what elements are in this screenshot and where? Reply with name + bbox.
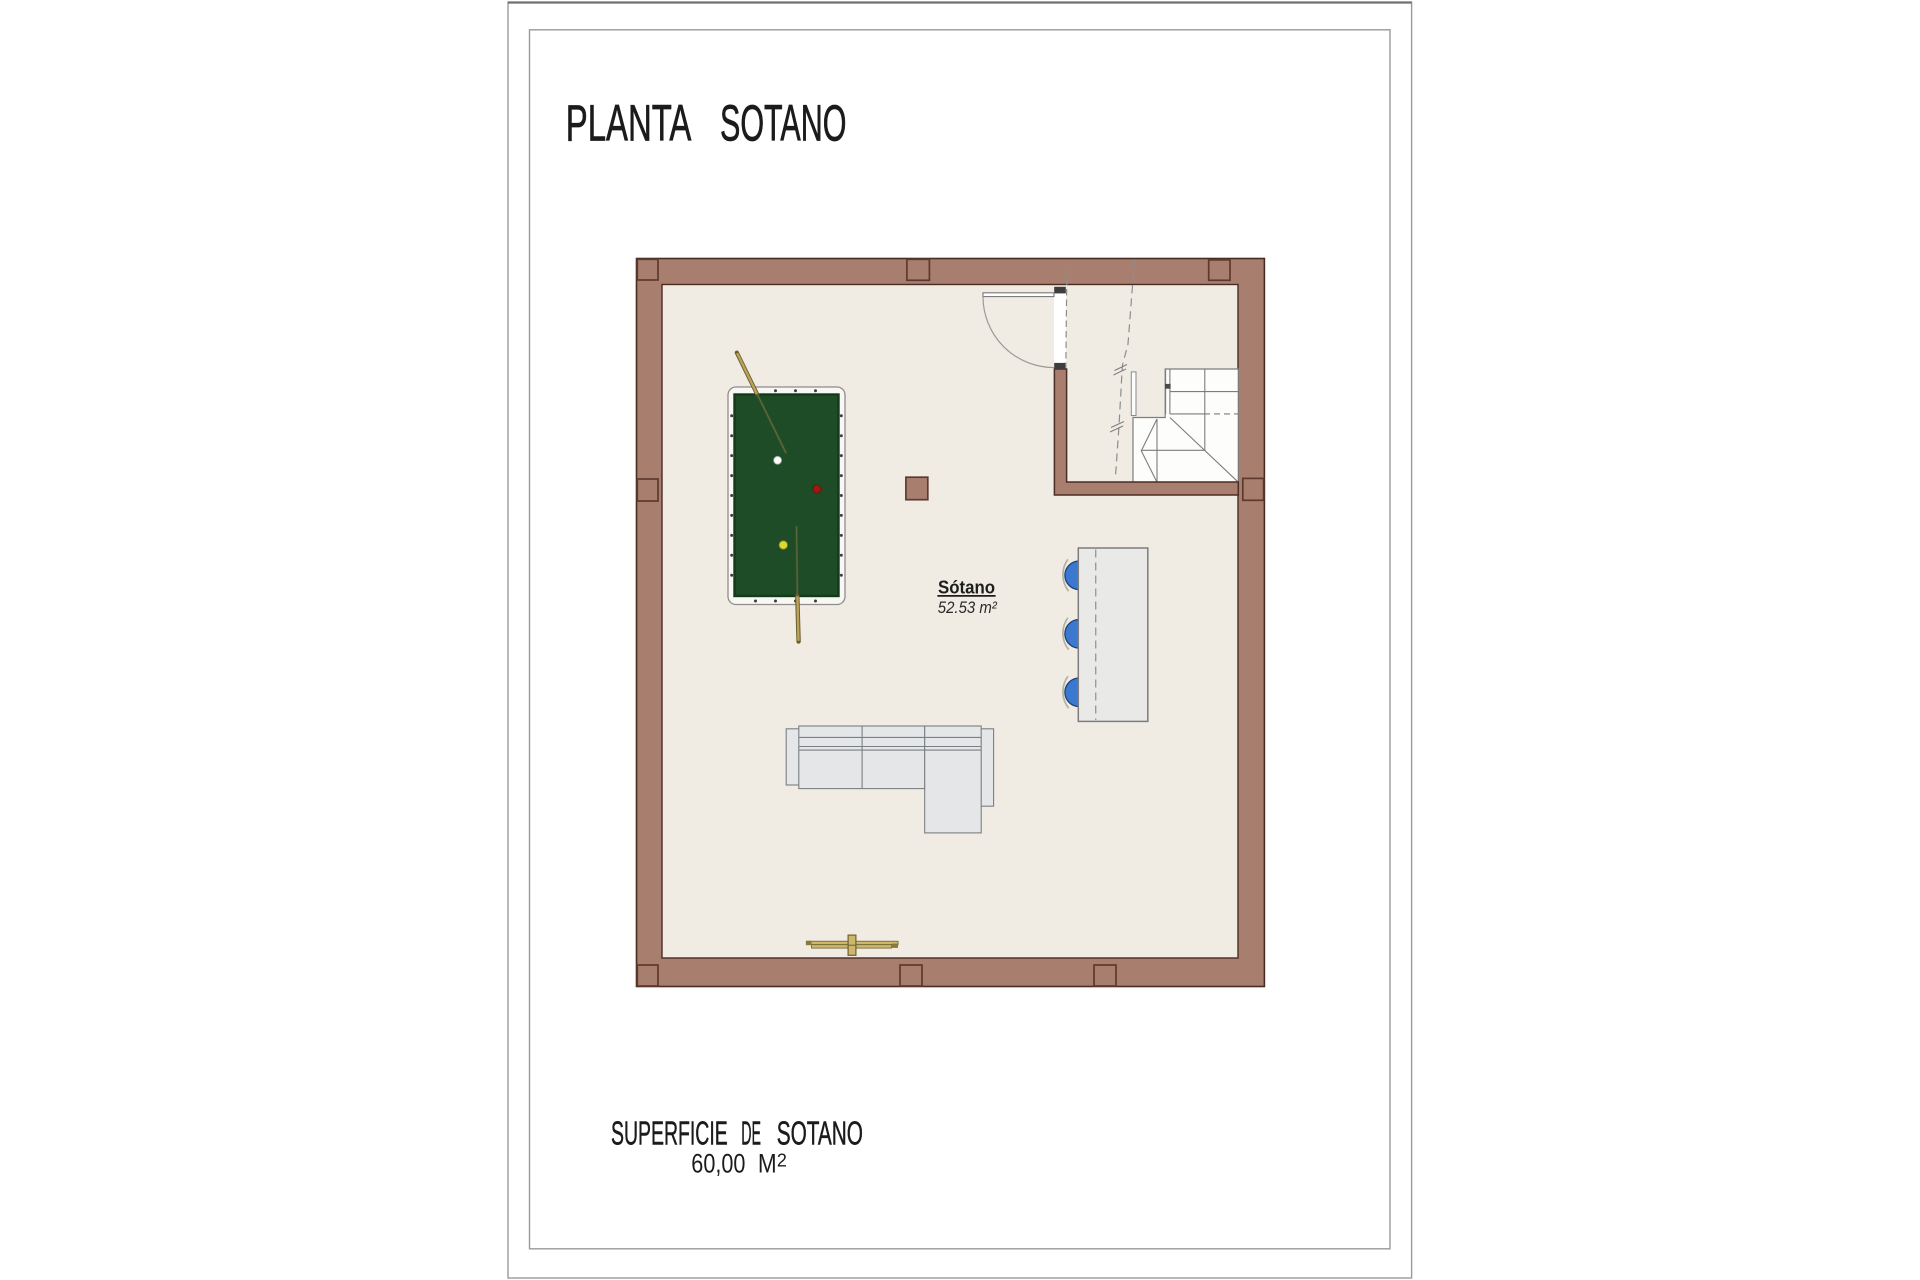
svg-text:60,00: 60,00 [691, 1149, 745, 1179]
svg-text:Sótano: Sótano [938, 577, 995, 597]
svg-text:PLANTA: PLANTA [566, 95, 692, 152]
svg-text:2: 2 [777, 1150, 787, 1170]
svg-text:DE: DE [741, 1115, 761, 1152]
svg-text:M: M [758, 1149, 777, 1179]
svg-text:SOTANO: SOTANO [720, 95, 846, 152]
svg-text:SUPERFICIE: SUPERFICIE [611, 1115, 728, 1152]
svg-text:52.53 m²: 52.53 m² [938, 599, 997, 617]
svg-text:SOTANO: SOTANO [777, 1115, 863, 1152]
